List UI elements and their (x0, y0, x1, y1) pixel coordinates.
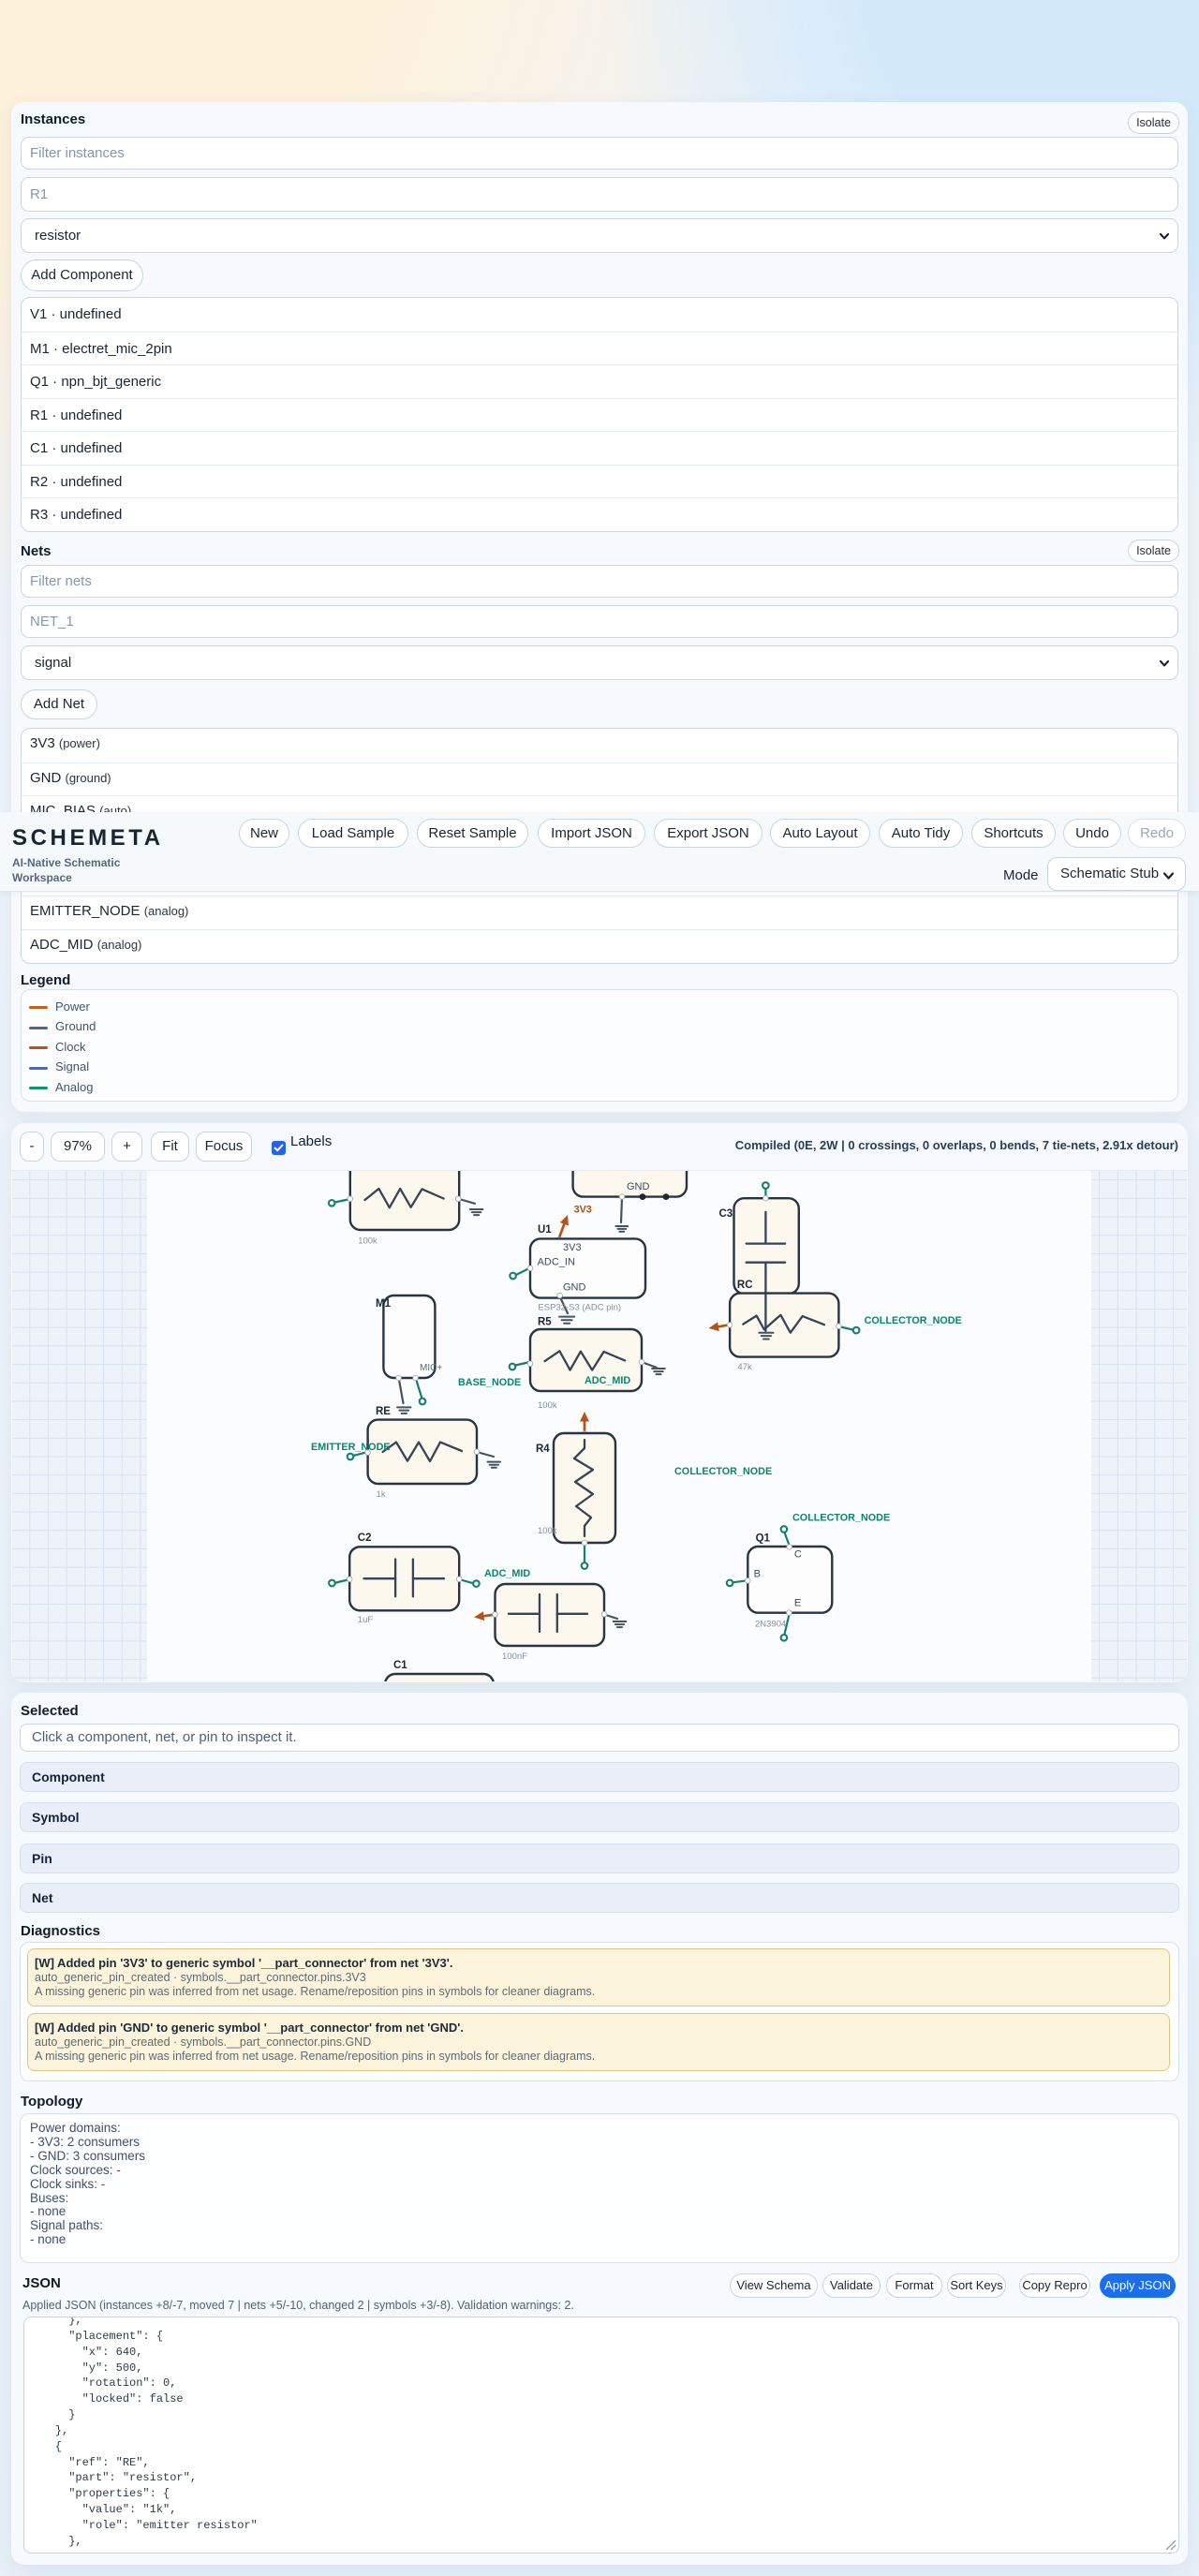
svg-text:47k: 47k (737, 1362, 752, 1372)
svg-text:ADC_IN: ADC_IN (538, 1256, 575, 1267)
svg-text:ADC_MID: ADC_MID (585, 1375, 630, 1386)
svg-text:C: C (794, 1549, 802, 1561)
svg-text:R5: R5 (538, 1316, 552, 1327)
svg-text:E: E (794, 1598, 801, 1609)
svg-text:C2: C2 (358, 1532, 372, 1544)
svg-text:100k: 100k (358, 1236, 377, 1247)
svg-text:ADC_MID: ADC_MID (484, 1568, 530, 1579)
svg-text:U1: U1 (538, 1224, 552, 1236)
svg-text:100k: 100k (538, 1526, 557, 1536)
svg-text:B: B (754, 1568, 761, 1579)
svg-text:GND: GND (627, 1181, 650, 1192)
svg-text:3V3: 3V3 (574, 1204, 592, 1215)
svg-text:R4: R4 (536, 1443, 550, 1455)
svg-text:C3: C3 (719, 1208, 733, 1220)
svg-text:ESP32-S3 (ADC pin): ESP32-S3 (ADC pin) (538, 1302, 621, 1312)
svg-text:COLLECTOR_NODE: COLLECTOR_NODE (792, 1513, 890, 1524)
svg-text:COLLECTOR_NODE: COLLECTOR_NODE (865, 1315, 962, 1326)
svg-text:RE: RE (376, 1406, 391, 1417)
svg-text:100k: 100k (538, 1400, 557, 1411)
svg-text:1uF: 1uF (358, 1615, 374, 1625)
svg-text:3V3: 3V3 (563, 1242, 582, 1253)
svg-text:Q1: Q1 (756, 1532, 771, 1544)
svg-text:RC: RC (737, 1280, 753, 1291)
svg-text:2N3904: 2N3904 (755, 1620, 786, 1630)
svg-text:MIC+: MIC+ (420, 1363, 442, 1373)
svg-text:EMITTER_NODE: EMITTER_NODE (311, 1442, 391, 1453)
svg-text:GND: GND (563, 1282, 586, 1294)
svg-text:100nF: 100nF (502, 1651, 527, 1662)
svg-text:1k: 1k (377, 1489, 386, 1500)
svg-text:COLLECTOR_NODE: COLLECTOR_NODE (674, 1466, 772, 1477)
svg-text:C1: C1 (393, 1660, 407, 1671)
svg-text:M1: M1 (376, 1298, 392, 1310)
svg-text:BASE_NODE: BASE_NODE (458, 1377, 521, 1388)
